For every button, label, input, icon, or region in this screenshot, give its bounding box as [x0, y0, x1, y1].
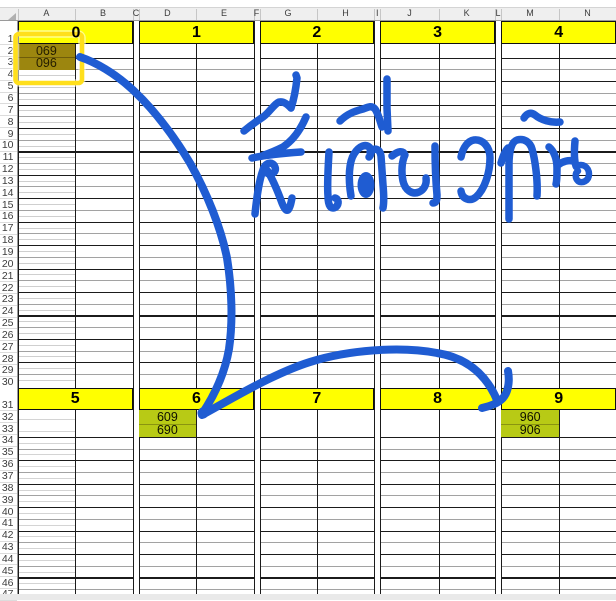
- svg-text:0: 0: [72, 25, 81, 42]
